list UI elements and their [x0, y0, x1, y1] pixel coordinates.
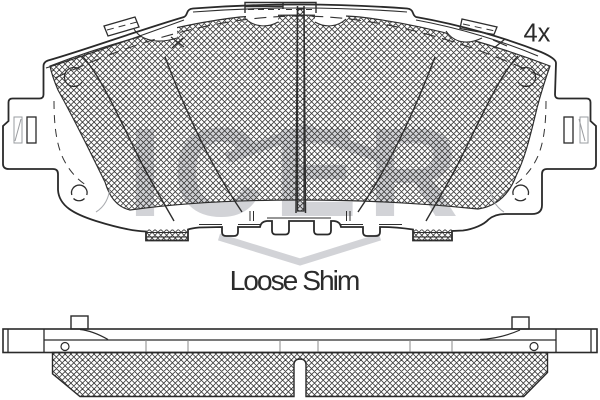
svg-text:Loose Shim: Loose Shim — [230, 264, 359, 296]
svg-text:4x: 4x — [524, 20, 551, 48]
